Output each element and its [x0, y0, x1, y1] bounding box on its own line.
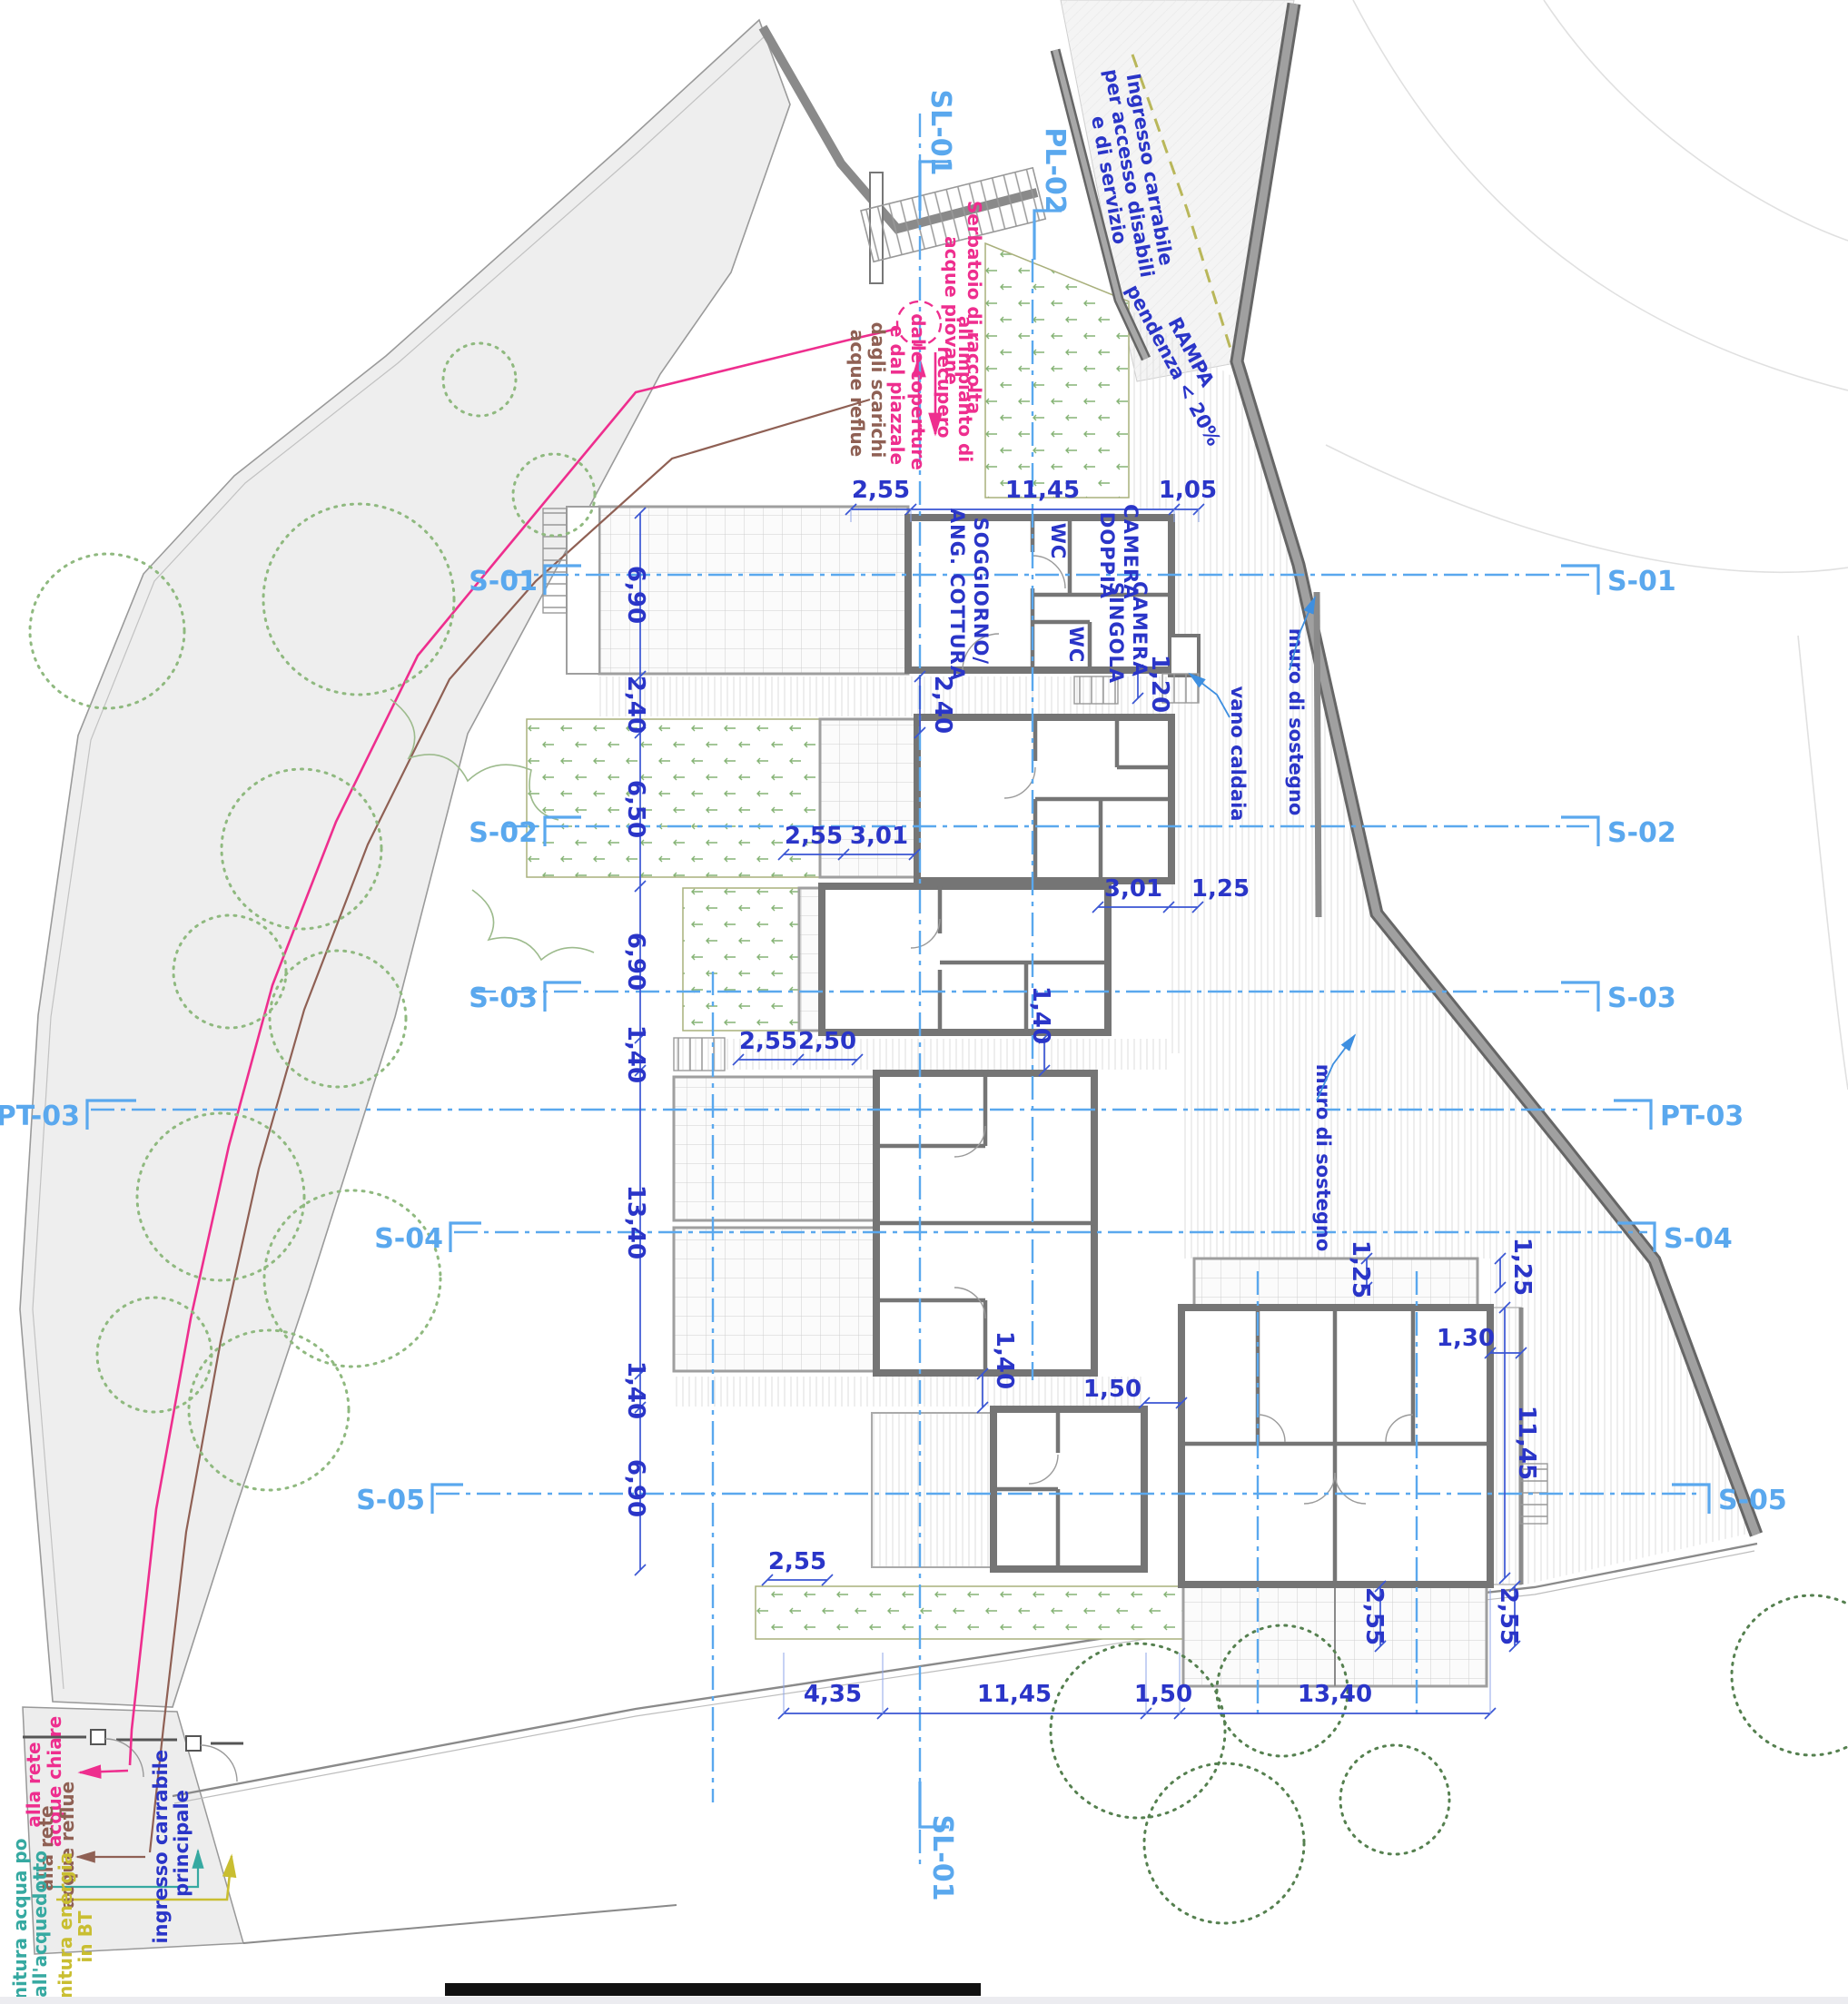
section-label-s03-left: S-03: [469, 982, 538, 1014]
note-vano-caldaia: vano caldaia: [1227, 686, 1249, 822]
unit-2: [914, 714, 1175, 884]
section-label-s01-left: S-01: [469, 566, 538, 597]
dim-bottom-1: 4,35: [804, 1681, 862, 1708]
terrace-unit2: [820, 719, 917, 877]
dim-u5-terrace: 2,55: [768, 1548, 826, 1575]
dim-u2r-2: 1,25: [1191, 875, 1250, 903]
axis-label-pl02-top: PL-02: [1039, 127, 1071, 213]
dim-left-4: 6,90: [622, 933, 649, 991]
room-wc2: WC: [1065, 627, 1087, 664]
dim-u6-top-1: 1,25: [1347, 1240, 1374, 1298]
note-muro-2: muro di sostegno: [1312, 1064, 1334, 1252]
scale-bar: [445, 1983, 981, 1996]
site-plan-page: S-01 S-02 S-03 PT-03 S-04 S-05 S-01 S-02…: [0, 0, 1848, 2004]
gate-post: [186, 1736, 201, 1751]
contour-lines: [1326, 0, 1848, 1090]
inner-retaining-wall: [1317, 592, 1319, 917]
dim-left-3: 6,50: [622, 780, 649, 838]
note-scarichi: dagli scarichi acque reflue: [846, 322, 889, 465]
dim-u6-top-2: 1,25: [1508, 1238, 1536, 1296]
dim-u6-side: 1,30: [1437, 1325, 1495, 1352]
dim-bottom-4: 13,40: [1298, 1681, 1372, 1708]
site-plan-drawing: S-01 S-02 S-03 PT-03 S-04 S-05 S-01 S-02…: [0, 0, 1848, 2004]
dim-u5-gap: 1,50: [1083, 1376, 1141, 1403]
entrance-area-bottom-left: [23, 1707, 677, 1954]
dim-top-1: 2,55: [852, 477, 910, 504]
dim-left-1: 6,90: [622, 566, 649, 624]
unit-3: [818, 883, 1112, 1036]
dim-top-2: 11,45: [1005, 477, 1080, 504]
axis-label-sl01-bottom: SL-01: [926, 1815, 958, 1901]
dim-u2-2: 3,01: [850, 823, 908, 850]
gate-post: [91, 1730, 105, 1744]
ramp-unit5: [872, 1413, 992, 1567]
terrace-unit6-top: [1194, 1259, 1477, 1308]
garden-unit2: [527, 719, 820, 877]
section-label-s02-right: S-02: [1607, 817, 1676, 849]
footer-strip: [0, 1997, 1848, 2004]
terrace-edge-unit1: [567, 507, 599, 674]
unit-5: [990, 1406, 1148, 1573]
dim-u2-1: 2,55: [785, 823, 843, 850]
stairs-unit3: [674, 1038, 725, 1071]
hatch-strip: [672, 1377, 1144, 1407]
dim-u2r-1: 3,01: [1104, 875, 1162, 903]
unit-4: [873, 1070, 1098, 1377]
dim-bottom-2: 11,45: [977, 1681, 1052, 1708]
stairs-unit1-left: [543, 508, 567, 613]
dim-left-8: 6,90: [622, 1459, 649, 1517]
dim-u6-height: 11,45: [1513, 1406, 1540, 1480]
dim-u4-gap: 1,40: [991, 1331, 1018, 1389]
dim-left-2: 2,40: [622, 676, 649, 734]
section-label-pt03-left: PT-03: [0, 1101, 80, 1132]
garden-unit5: [756, 1586, 1185, 1639]
note-impianto: all'impianto di recupero: [934, 316, 976, 469]
garden-patch-top: [985, 243, 1129, 498]
section-label-s01-right: S-01: [1607, 566, 1676, 597]
note-muro-1: muro di sostegno: [1285, 628, 1307, 816]
section-label-s04-left: S-04: [374, 1223, 443, 1255]
note-fornitura-acqua: fornitura acqua po dall'acquedotto: [9, 1832, 51, 2004]
dim-u6-terr-2: 2,55: [1495, 1587, 1522, 1645]
section-label-pt03-right: PT-03: [1660, 1101, 1744, 1132]
dim-left-6: 13,40: [622, 1185, 649, 1259]
dim-u1-gap: 2,40: [929, 676, 956, 734]
axis-label-sl01-top: SL-01: [924, 90, 956, 176]
dim-u3-right: 1,40: [1027, 986, 1054, 1044]
dim-top-3: 1,05: [1159, 477, 1217, 504]
dim-left-7: 1,40: [622, 1361, 649, 1419]
dim-u3-1: 2,55: [739, 1028, 797, 1055]
dim-bottom-3: 1,50: [1134, 1681, 1192, 1708]
section-label-s03-right: S-03: [1607, 982, 1676, 1014]
dim-u3-2: 2,50: [798, 1028, 856, 1055]
section-label-s02-left: S-02: [469, 817, 538, 849]
dim-u6-terr-1: 2,55: [1360, 1587, 1388, 1645]
garden-unit3: [683, 888, 799, 1031]
section-label-s04-right: S-04: [1664, 1223, 1733, 1255]
terrace-unit4-upper: [674, 1077, 876, 1220]
room-wc1: WC: [1047, 523, 1069, 560]
dim-left-5: 1,40: [622, 1025, 649, 1083]
section-label-s05-left: S-05: [356, 1485, 425, 1516]
note-coperture: dalle coperture e dal piazzale: [886, 313, 929, 477]
terrace-unit4-lower: [674, 1228, 876, 1371]
section-label-s05-right: S-05: [1718, 1485, 1787, 1516]
